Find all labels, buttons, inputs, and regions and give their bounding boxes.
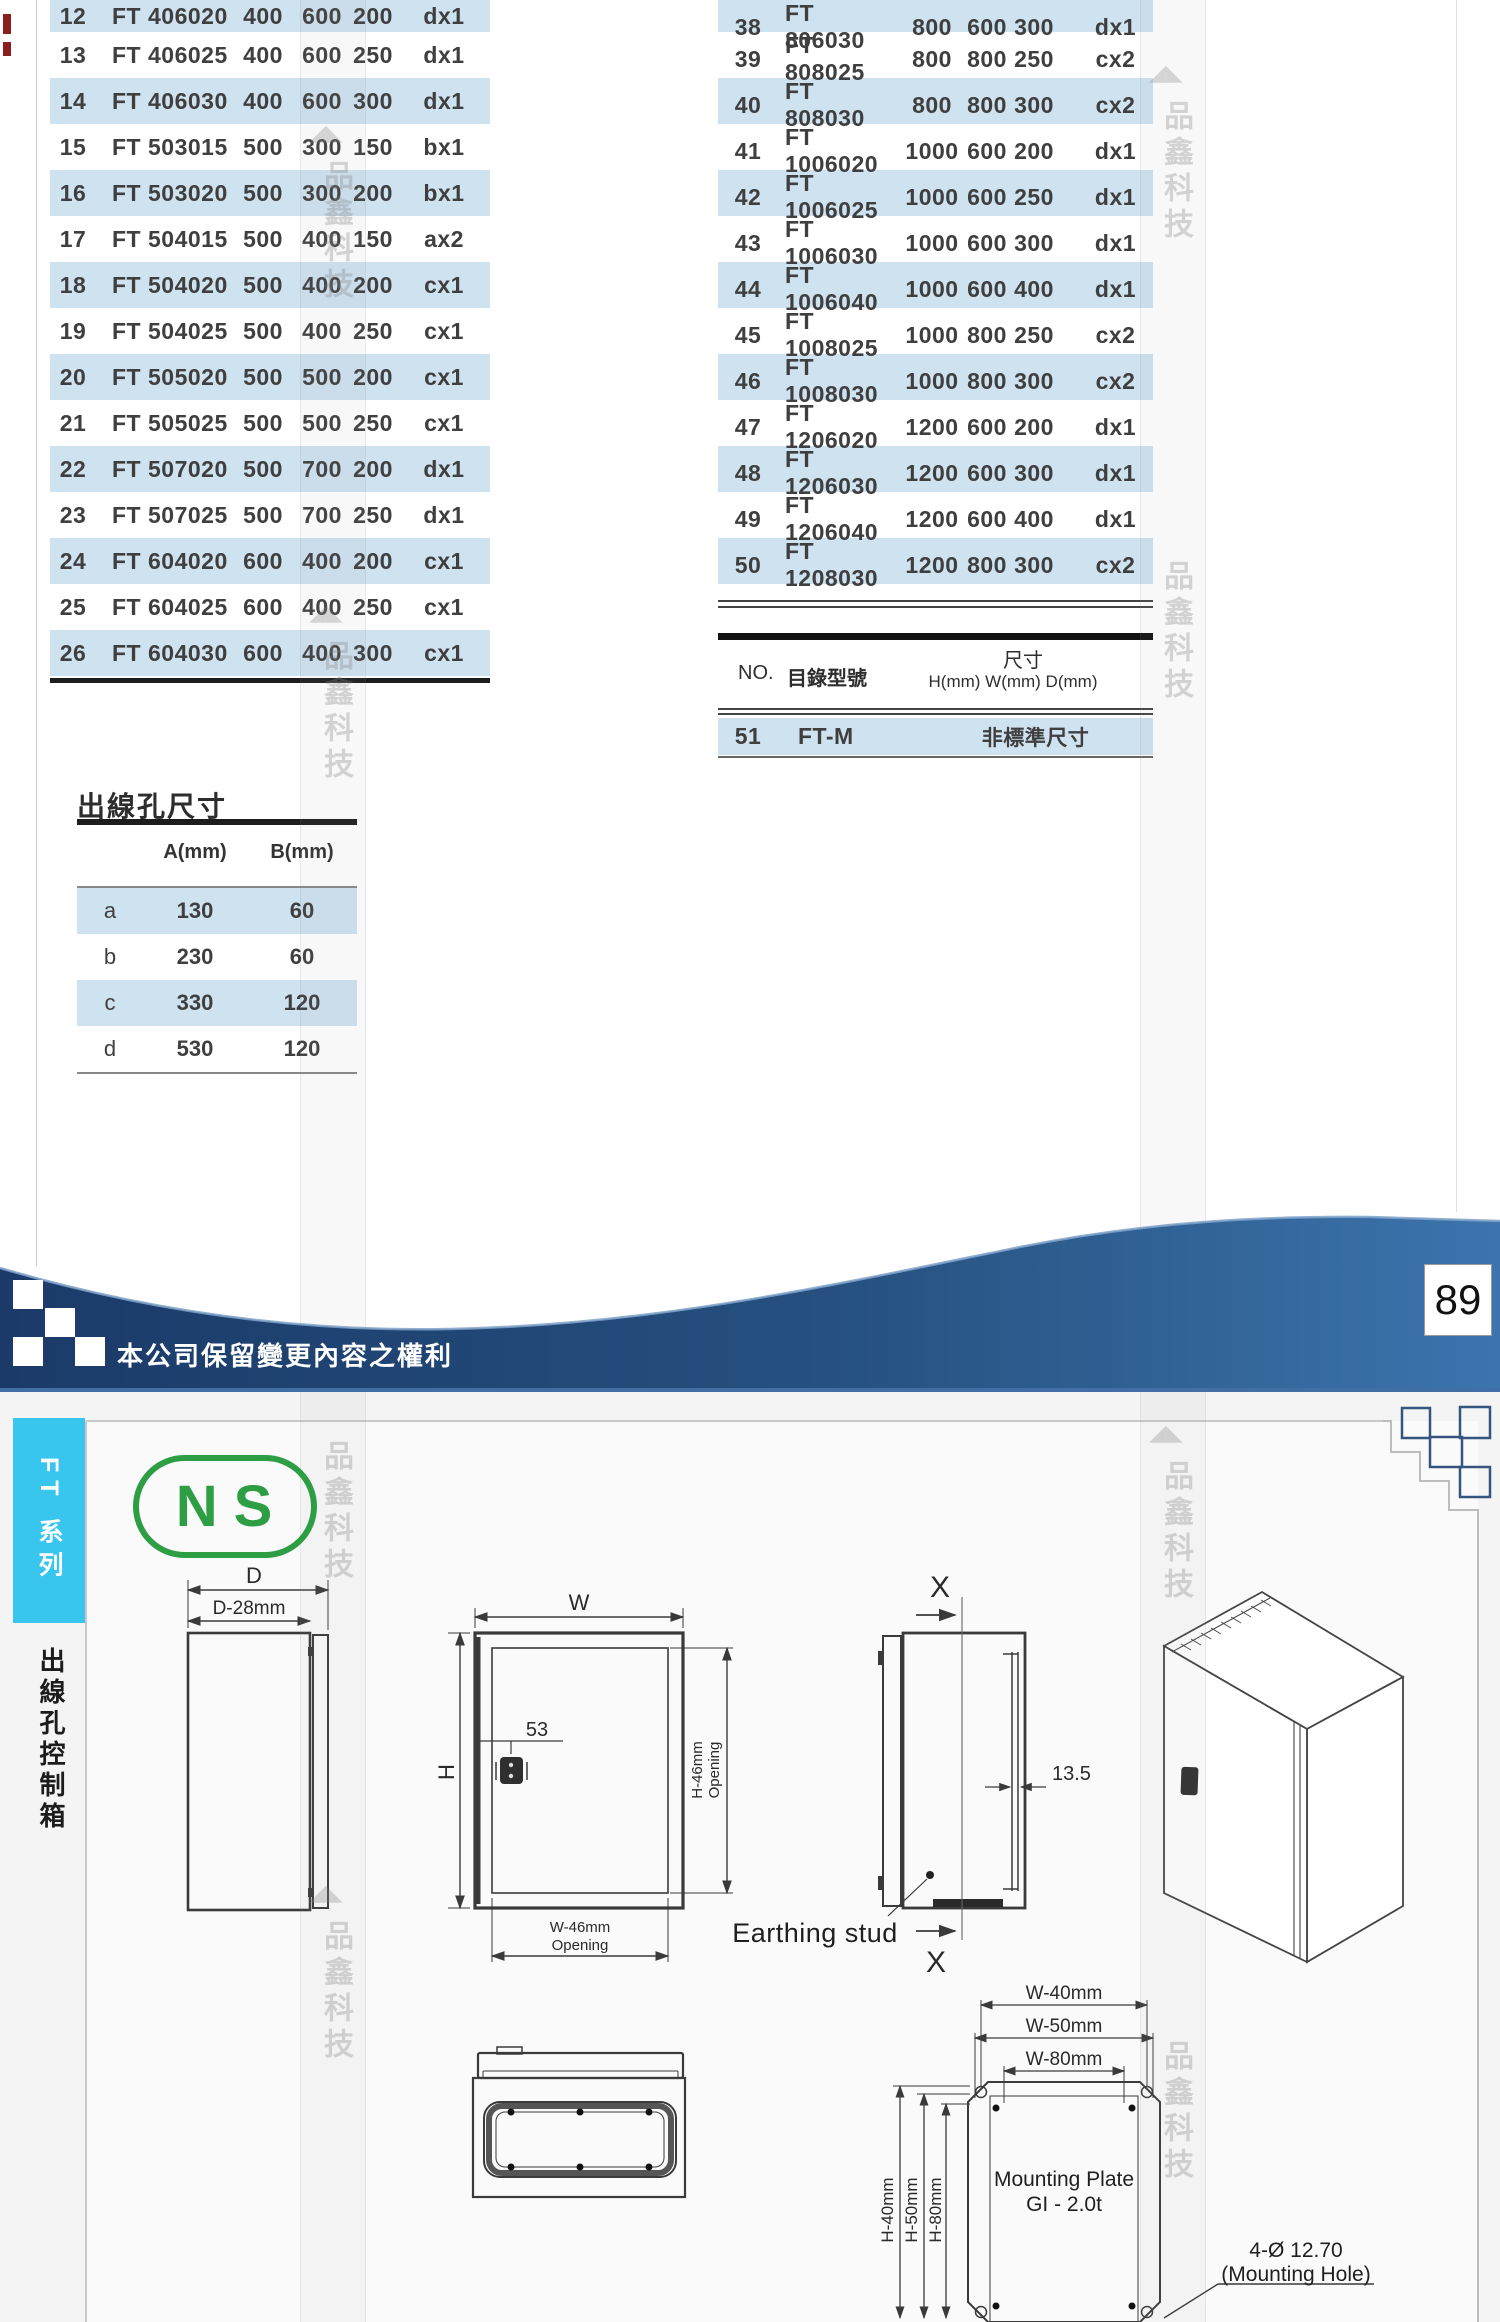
- row-d: 300: [1010, 92, 1058, 119]
- row-code: dx1: [1058, 506, 1153, 533]
- row-d: 250: [348, 502, 398, 529]
- table-row: 14 FT 406030 400 600 300 dx1: [50, 78, 490, 124]
- row-w: 300: [296, 134, 348, 161]
- table-row: 20 FT 505020 500 500 200 cx1: [50, 354, 490, 400]
- row-no: 18: [50, 272, 96, 299]
- row-h: 1200: [900, 414, 964, 441]
- row-h: 1000: [900, 138, 964, 165]
- row-no: 50: [718, 552, 778, 579]
- table-row: 42 FT 1006025 1000 600 250 dx1: [718, 170, 1153, 216]
- row-d: 250: [1010, 322, 1058, 349]
- row-no: 25: [50, 594, 96, 621]
- table-bottom-rule: [50, 678, 490, 683]
- row-h: 600: [230, 594, 296, 621]
- row-w: 700: [296, 502, 348, 529]
- table-row: 19 FT 504025 500 400 250 cx1: [50, 308, 490, 354]
- row-d: 400: [1010, 506, 1058, 533]
- row-w: 600: [296, 42, 348, 69]
- row-code: ax2: [398, 226, 490, 253]
- row-w: 400: [296, 272, 348, 299]
- row-d: 300: [1010, 460, 1058, 487]
- series-tab: FT 系列: [13, 1418, 85, 1623]
- row-h: 500: [230, 226, 296, 253]
- row-w: 800: [964, 46, 1010, 73]
- row-d: 200: [348, 456, 398, 483]
- row-d: 250: [348, 410, 398, 437]
- row-model: FT 507025: [96, 502, 230, 529]
- row-w: 600: [296, 3, 348, 30]
- hole-row: c 330 120: [77, 980, 357, 1026]
- rule: [718, 713, 1153, 715]
- table-row: 40 FT 808030 800 800 300 cx2: [718, 78, 1153, 124]
- row-model: FT 505025: [96, 410, 230, 437]
- row-model: FT 504020: [96, 272, 230, 299]
- row-w: 400: [296, 226, 348, 253]
- row-h: 1200: [900, 506, 964, 533]
- table-row: 21 FT 505025 500 500 250 cx1: [50, 400, 490, 446]
- row-model: FT 406030: [96, 88, 230, 115]
- row-w: 300: [296, 180, 348, 207]
- rule: [718, 600, 1153, 602]
- checker-square: [45, 1308, 75, 1337]
- ns-logo: NS: [133, 1455, 317, 1558]
- row-code: cx1: [398, 364, 490, 391]
- header-rule: [718, 633, 1153, 640]
- footer-size-label: 尺寸: [948, 644, 1098, 673]
- row-a: 530: [143, 1036, 247, 1062]
- row-no: 17: [50, 226, 96, 253]
- row-no: 43: [718, 230, 778, 257]
- row-code: cx1: [398, 594, 490, 621]
- row-model: FT 406025: [96, 42, 230, 69]
- row-code: cx1: [398, 272, 490, 299]
- row-no: 14: [50, 88, 96, 115]
- table-row: 47 FT 1206020 1200 600 200 dx1: [718, 400, 1153, 446]
- row-w: 600: [964, 14, 1010, 41]
- row-model: FT 505020: [96, 364, 230, 391]
- row-code: dx1: [1058, 184, 1153, 211]
- spacer: [77, 841, 143, 864]
- row-d: 200: [348, 3, 398, 30]
- row-key: a: [77, 898, 143, 924]
- row-no: 47: [718, 414, 778, 441]
- table-row: 45 FT 1008025 1000 800 250 cx2: [718, 308, 1153, 354]
- row-model: FT 1208030: [778, 538, 900, 592]
- row-key: c: [77, 990, 143, 1016]
- footer-model-label: 目錄型號: [787, 662, 867, 691]
- row-h: 500: [230, 134, 296, 161]
- table-row: 16 FT 503020 500 300 200 bx1: [50, 170, 490, 216]
- table-row: 25 FT 604025 600 400 250 cx1: [50, 584, 490, 630]
- row-code: cx2: [1058, 322, 1153, 349]
- row-h: 1000: [900, 184, 964, 211]
- table-row: 50 FT 1208030 1200 800 300 cx2: [718, 538, 1153, 584]
- left-page-border: [36, 0, 37, 1266]
- row-no: 20: [50, 364, 96, 391]
- row-h: 1200: [900, 460, 964, 487]
- catalog-page: 12 FT 406020 400 600 200 dx1 13 FT 40602…: [0, 0, 1500, 2322]
- table-row: 49 FT 1206040 1200 600 400 dx1: [718, 492, 1153, 538]
- row-h: 400: [230, 88, 296, 115]
- row-code: dx1: [1058, 276, 1153, 303]
- table-row: 17 FT 504015 500 400 150 ax2: [50, 216, 490, 262]
- row-d: 200: [1010, 414, 1058, 441]
- checker-square: [13, 1337, 43, 1366]
- row-d: 250: [1010, 184, 1058, 211]
- row-h: 500: [230, 272, 296, 299]
- row-size: 非標準尺寸: [918, 722, 1153, 752]
- row-b: 60: [247, 898, 357, 924]
- row-model: FT-M: [778, 723, 918, 750]
- row-model: FT 406020: [96, 3, 230, 30]
- table-row: 15 FT 503015 500 300 150 bx1: [50, 124, 490, 170]
- row-code: bx1: [398, 134, 490, 161]
- row-no: 39: [718, 46, 778, 73]
- row-code: dx1: [398, 88, 490, 115]
- row-a: 230: [143, 944, 247, 970]
- table-row: 24 FT 604020 600 400 200 cx1: [50, 538, 490, 584]
- row-w: 600: [296, 88, 348, 115]
- table-row: 22 FT 507020 500 700 200 dx1: [50, 446, 490, 492]
- row-code: cx1: [398, 410, 490, 437]
- row-h: 800: [900, 92, 964, 119]
- footer-size-sub-label: H(mm) W(mm) D(mm): [878, 672, 1148, 692]
- col-a-header: A(mm): [143, 841, 247, 864]
- rule: [77, 1072, 357, 1074]
- row-d: 200: [348, 364, 398, 391]
- row-key: d: [77, 1036, 143, 1062]
- row-b: 120: [247, 990, 357, 1016]
- row-h: 1000: [900, 276, 964, 303]
- row-no: 16: [50, 180, 96, 207]
- checker-square: [13, 1280, 43, 1309]
- row-w: 500: [296, 410, 348, 437]
- row-h: 500: [230, 456, 296, 483]
- row-code: dx1: [1058, 230, 1153, 257]
- table-row: 46 FT 1008030 1000 800 300 cx2: [718, 354, 1153, 400]
- row-no: 15: [50, 134, 96, 161]
- row-b: 60: [247, 944, 357, 970]
- table-row: 26 FT 604030 600 400 300 cx1: [50, 630, 490, 676]
- row-w: 600: [964, 276, 1010, 303]
- ns-logo-text: NS: [162, 1473, 289, 1540]
- row-h: 500: [230, 364, 296, 391]
- row-w: 700: [296, 456, 348, 483]
- row-no: 42: [718, 184, 778, 211]
- row-w: 600: [964, 460, 1010, 487]
- table-row: 44 FT 1006040 1000 600 400 dx1: [718, 262, 1153, 308]
- row-d: 250: [348, 42, 398, 69]
- row-code: dx1: [1058, 414, 1153, 441]
- table-row: 23 FT 507025 500 700 250 dx1: [50, 492, 490, 538]
- row-w: 400: [296, 318, 348, 345]
- title-underline: [77, 819, 357, 825]
- row-h: 800: [900, 14, 964, 41]
- row-code: cx2: [1058, 92, 1153, 119]
- row-d: 300: [1010, 14, 1058, 41]
- row-model: FT 604025: [96, 594, 230, 621]
- row-d: 400: [1010, 276, 1058, 303]
- row-d: 250: [1010, 46, 1058, 73]
- row-h: 500: [230, 502, 296, 529]
- row-h: 600: [230, 640, 296, 667]
- watermark-logo: ◢◣: [1149, 60, 1183, 86]
- table-row: 48 FT 1206030 1200 600 300 dx1: [718, 446, 1153, 492]
- row-code: dx1: [398, 456, 490, 483]
- row-code: dx1: [1058, 138, 1153, 165]
- row-d: 300: [1010, 230, 1058, 257]
- row-no: 38: [718, 14, 778, 41]
- print-mark: [3, 42, 11, 56]
- row-h: 1200: [900, 552, 964, 579]
- row-d: 300: [1010, 368, 1058, 395]
- catalog-table-right: 38 FT 806030 800 600 300 dx1 39 FT 80802…: [718, 0, 1153, 584]
- row-w: 600: [964, 506, 1010, 533]
- row-h: 1000: [900, 230, 964, 257]
- watermark-text: 品鑫科技: [1153, 560, 1197, 704]
- row-a: 330: [143, 990, 247, 1016]
- row-code: cx2: [1058, 552, 1153, 579]
- checker-square: [75, 1337, 105, 1366]
- row-w: 800: [964, 322, 1010, 349]
- row-d: 150: [348, 226, 398, 253]
- row-no: 26: [50, 640, 96, 667]
- hole-table-header: A(mm) B(mm): [77, 841, 357, 864]
- row-w: 600: [964, 184, 1010, 211]
- row-no: 48: [718, 460, 778, 487]
- series-label: FT 系列: [31, 1457, 67, 1585]
- row-w: 500: [296, 364, 348, 391]
- row-h: 600: [230, 548, 296, 575]
- row-h: 400: [230, 3, 296, 30]
- row-h: 800: [900, 46, 964, 73]
- row-code: cx2: [1058, 368, 1153, 395]
- row-h: 1000: [900, 368, 964, 395]
- right-page-border: [1456, 0, 1457, 1212]
- row-w: 800: [964, 368, 1010, 395]
- row-model: FT 504015: [96, 226, 230, 253]
- table-row: 41 FT 1006020 1000 600 200 dx1: [718, 124, 1153, 170]
- row-model: FT 604030: [96, 640, 230, 667]
- table-row: 12 FT 406020 400 600 200 dx1: [50, 0, 490, 32]
- page-number: 89: [1435, 1276, 1482, 1324]
- table-row: 43 FT 1006030 1000 600 300 dx1: [718, 216, 1153, 262]
- rule: [718, 606, 1153, 608]
- hole-row: b 230 60: [77, 934, 357, 980]
- row-d: 250: [348, 594, 398, 621]
- table-row: 18 FT 504020 500 400 200 cx1: [50, 262, 490, 308]
- page-number-box: 89: [1424, 1264, 1492, 1336]
- row-b: 120: [247, 1036, 357, 1062]
- row-no: 21: [50, 410, 96, 437]
- row-model: FT 504025: [96, 318, 230, 345]
- row-code: bx1: [398, 180, 490, 207]
- row-no: 23: [50, 502, 96, 529]
- col-b-header: B(mm): [247, 841, 357, 864]
- row-h: 400: [230, 42, 296, 69]
- row-no: 45: [718, 322, 778, 349]
- row-model: FT 503020: [96, 180, 230, 207]
- footer-no-label: NO.: [738, 662, 774, 685]
- row-w: 800: [964, 552, 1010, 579]
- watermark-text: 品鑫科技: [1153, 100, 1197, 244]
- row-no: 40: [718, 92, 778, 119]
- row-d: 300: [348, 88, 398, 115]
- row-code: cx2: [1058, 46, 1153, 73]
- row-model: FT 507020: [96, 456, 230, 483]
- table-row: 13 FT 406025 400 600 250 dx1: [50, 32, 490, 78]
- row-w: 600: [964, 414, 1010, 441]
- row-code: dx1: [398, 3, 490, 30]
- row-no: 46: [718, 368, 778, 395]
- row-no: 12: [50, 3, 96, 30]
- row-w: 800: [964, 92, 1010, 119]
- row-code: dx1: [1058, 14, 1153, 41]
- row-d: 200: [348, 548, 398, 575]
- special-row: 51 FT-M 非標準尺寸: [718, 718, 1153, 755]
- rule: [718, 756, 1153, 758]
- row-d: 200: [348, 272, 398, 299]
- row-code: cx1: [398, 548, 490, 575]
- row-w: 400: [296, 548, 348, 575]
- category-label: 出線孔控制箱: [34, 1647, 70, 1833]
- row-code: dx1: [398, 502, 490, 529]
- row-d: 300: [1010, 552, 1058, 579]
- row-w: 400: [296, 640, 348, 667]
- row-w: 600: [964, 138, 1010, 165]
- row-no: 41: [718, 138, 778, 165]
- row-code: dx1: [1058, 460, 1153, 487]
- row-d: 200: [348, 180, 398, 207]
- hole-row: a 130 60: [77, 888, 357, 934]
- row-no: 22: [50, 456, 96, 483]
- row-h: 500: [230, 180, 296, 207]
- hole-size-table: 出線孔尺寸 A(mm) B(mm) a 130 60 b 230 60 c 33…: [77, 785, 357, 1080]
- hole-row: d 530 120: [77, 1026, 357, 1072]
- rule: [718, 708, 1153, 710]
- row-d: 300: [348, 640, 398, 667]
- row-code: cx1: [398, 640, 490, 667]
- row-no: 13: [50, 42, 96, 69]
- row-no: 44: [718, 276, 778, 303]
- row-h: 1000: [900, 322, 964, 349]
- row-h: 500: [230, 410, 296, 437]
- row-d: 150: [348, 134, 398, 161]
- banner-bottom-edge: [0, 1388, 1500, 1392]
- row-key: b: [77, 944, 143, 970]
- row-d: 250: [348, 318, 398, 345]
- row-w: 400: [296, 594, 348, 621]
- row-model: FT 604020: [96, 548, 230, 575]
- print-mark: [3, 14, 11, 34]
- table-row: 38 FT 806030 800 600 300 dx1: [718, 0, 1153, 32]
- row-code: cx1: [398, 318, 490, 345]
- row-d: 200: [1010, 138, 1058, 165]
- row-h: 500: [230, 318, 296, 345]
- row-no: 19: [50, 318, 96, 345]
- row-model: FT 503015: [96, 134, 230, 161]
- rights-note: 本公司保留變更內容之權利: [117, 1336, 453, 1373]
- row-code: dx1: [398, 42, 490, 69]
- row-w: 600: [964, 230, 1010, 257]
- row-no: 49: [718, 506, 778, 533]
- row-no: 51: [718, 723, 778, 750]
- row-no: 24: [50, 548, 96, 575]
- drawing-panel-background: [86, 1421, 1478, 2322]
- catalog-table-left: 12 FT 406020 400 600 200 dx1 13 FT 40602…: [50, 0, 490, 676]
- row-a: 130: [143, 898, 247, 924]
